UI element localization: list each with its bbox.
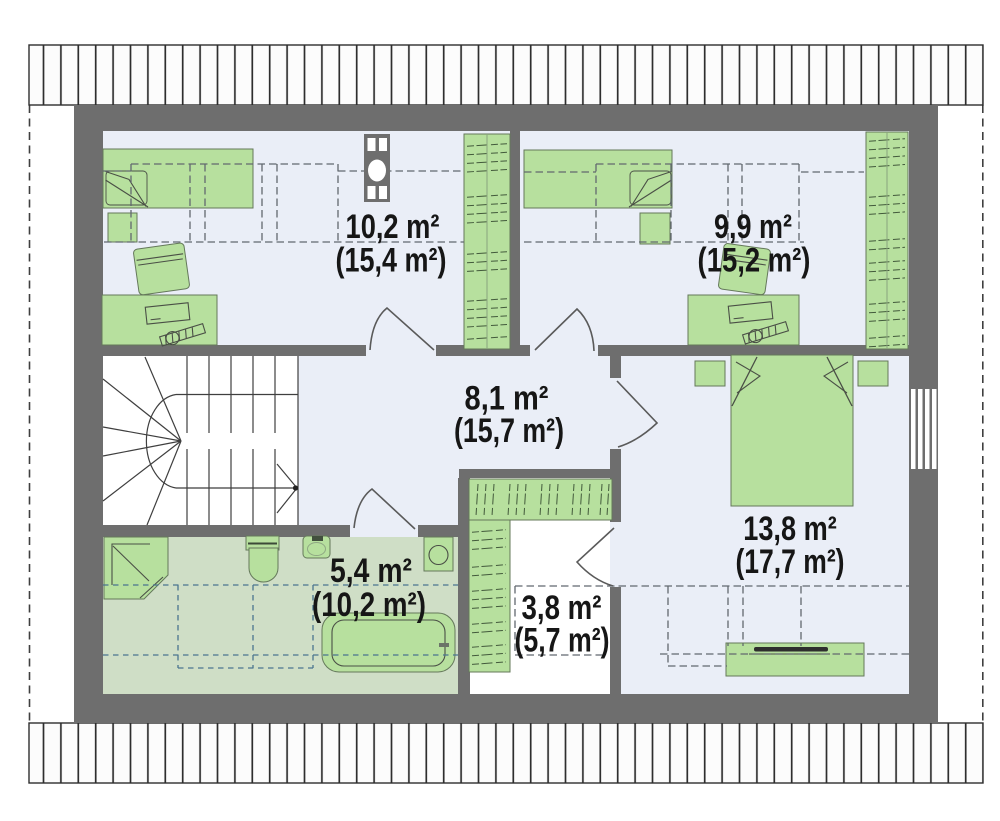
svg-text:5,4 m²: 5,4 m² [330, 552, 412, 590]
svg-text:(10,2 m²): (10,2 m²) [312, 585, 426, 623]
svg-text:(17,7 m²): (17,7 m²) [735, 543, 844, 581]
svg-text:(5,7 m²): (5,7 m²) [515, 621, 610, 659]
svg-text:(15,2 m²): (15,2 m²) [698, 241, 811, 280]
svg-text:(15,7 m²): (15,7 m²) [454, 412, 564, 450]
svg-text:(15,4 m²): (15,4 m²) [336, 240, 447, 279]
